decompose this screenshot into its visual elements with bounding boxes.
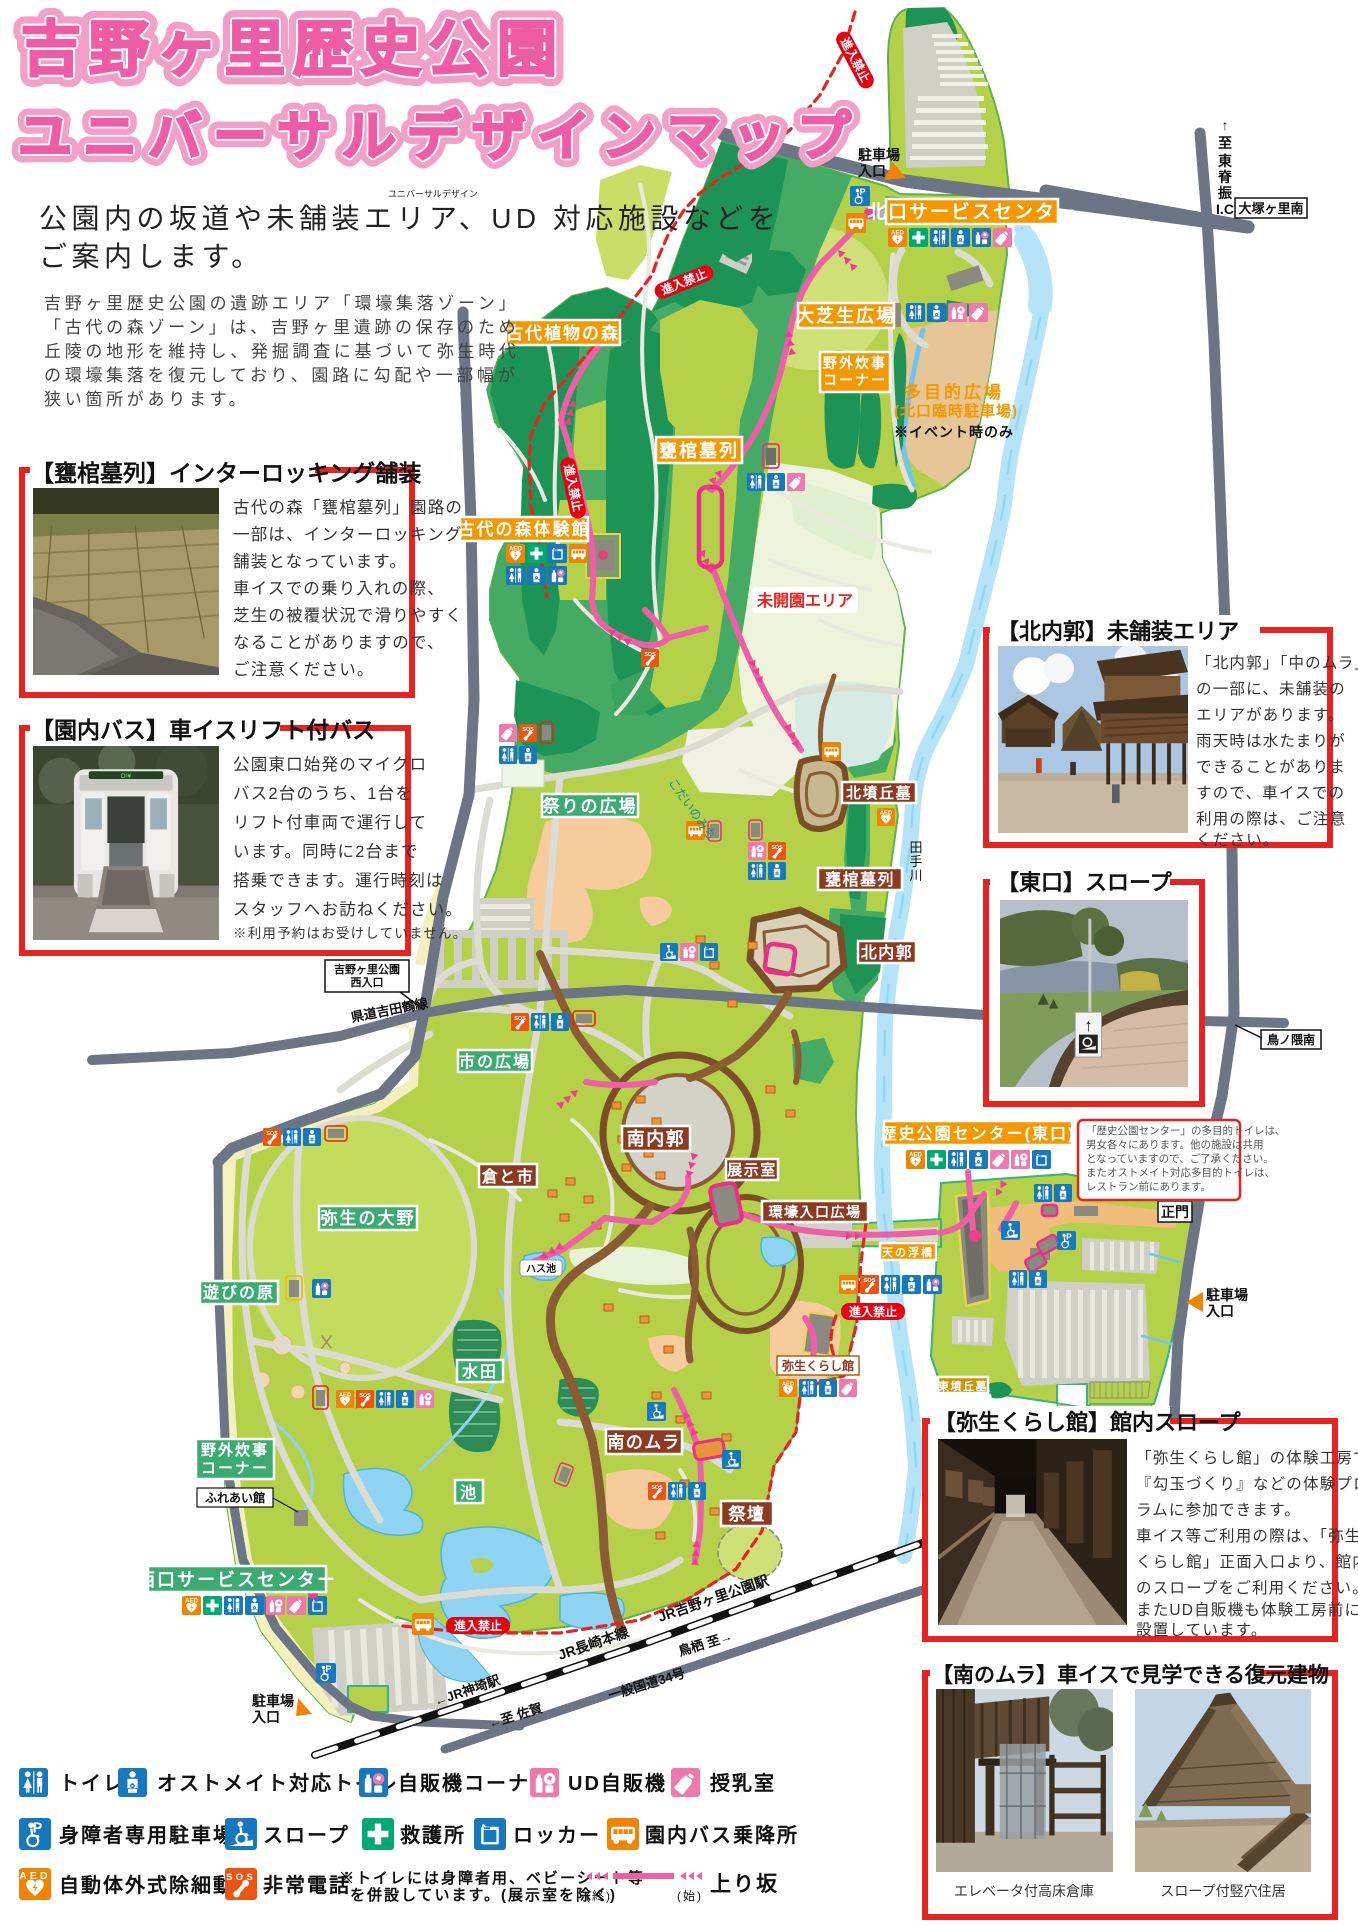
svg-text:遊びの原: 遊びの原 bbox=[203, 1283, 275, 1302]
svg-text:天の浮橋: 天の浮橋 bbox=[882, 1245, 934, 1259]
svg-text:弥生の大野: 弥生の大野 bbox=[321, 1208, 416, 1228]
svg-text:ください。: ください。 bbox=[1196, 831, 1280, 849]
svg-text:公園東口始発のマイクロ: 公園東口始発のマイクロ bbox=[233, 755, 427, 774]
svg-text:芝生の被覆状況で滑りやすく: 芝生の被覆状況で滑りやすく bbox=[233, 606, 463, 625]
svg-text:環壕入口広場: 環壕入口広場 bbox=[769, 1204, 862, 1220]
svg-text:【南のムラ】車イスで見学できる復元建物: 【南のムラ】車イスで見学できる復元建物 bbox=[932, 1663, 1329, 1687]
svg-text:展示室: 展示室 bbox=[727, 1161, 777, 1179]
svg-text:の一部に、未舗装の: の一部に、未舗装の bbox=[1196, 680, 1346, 698]
svg-text:トイレ: トイレ bbox=[59, 1773, 125, 1795]
svg-text:(終): (終) bbox=[586, 1888, 612, 1903]
svg-text:を併設しています。(展示室を除く): を併設しています。(展示室を除く) bbox=[350, 1886, 617, 1904]
svg-text:一部は、インターロッキング: 一部は、インターロッキング bbox=[233, 525, 463, 544]
svg-text:ラムに参加できます。: ラムに参加できます。 bbox=[1136, 1501, 1301, 1519]
svg-text:至: 至 bbox=[1218, 135, 1232, 151]
svg-text:男女各々にあります。他の施設は共用: 男女各々にあります。他の施設は共用 bbox=[1086, 1138, 1263, 1151]
svg-text:川: 川 bbox=[909, 868, 922, 883]
svg-text:甕棺墓列: 甕棺墓列 bbox=[659, 440, 739, 461]
svg-text:車イスでの乗り入れの際、: 車イスでの乗り入れの際、 bbox=[233, 579, 445, 598]
svg-text:授乳室: 授乳室 bbox=[710, 1771, 776, 1795]
svg-text:弥生くらし館: 弥生くらし館 bbox=[782, 1358, 854, 1373]
svg-text:入口: 入口 bbox=[1205, 1303, 1234, 1319]
svg-text:上り坂: 上り坂 bbox=[710, 1873, 779, 1896]
svg-text:吉野ヶ里歴史公園: 吉野ヶ里歴史公園 bbox=[21, 16, 565, 83]
svg-text:の環壕集落を復元しており、園路に勾配や一部幅が: の環壕集落を復元しており、園路に勾配や一部幅が bbox=[44, 366, 518, 385]
svg-text:スロープ付竪穴住居: スロープ付竪穴住居 bbox=[1160, 1883, 1285, 1899]
svg-text:非常電話: 非常電話 bbox=[263, 1874, 351, 1897]
svg-text:ご注意ください。: ご注意ください。 bbox=[233, 660, 375, 679]
svg-text:ふれあい館: ふれあい館 bbox=[205, 1490, 265, 1505]
svg-text:レストラン前にあります。: レストラン前にあります。 bbox=[1086, 1180, 1211, 1193]
svg-text:振: 振 bbox=[1218, 185, 1233, 201]
svg-text:西口サービスセンター: 西口サービスセンター bbox=[137, 1570, 337, 1590]
svg-text:進入禁止: 進入禁止 bbox=[454, 1618, 502, 1633]
svg-text:のスロープをご利用ください。: のスロープをご利用ください。 bbox=[1136, 1579, 1358, 1597]
svg-text:狭い箇所があります。: 狭い箇所があります。 bbox=[44, 390, 249, 409]
svg-text:大塚ヶ里南: 大塚ヶ里南 bbox=[1238, 201, 1303, 216]
svg-text:祭りの広場: 祭りの広場 bbox=[542, 796, 638, 816]
svg-text:搭乗できます。運行時刻は: 搭乗できます。運行時刻は bbox=[233, 871, 444, 890]
svg-text:正門: 正門 bbox=[1161, 1204, 1189, 1220]
svg-text:祭壇: 祭壇 bbox=[728, 1504, 766, 1524]
svg-text:「北内郭」「中のムラ」: 「北内郭」「中のムラ」 bbox=[1196, 654, 1358, 672]
svg-text:脊: 脊 bbox=[1217, 169, 1233, 185]
svg-text:田: 田 bbox=[909, 840, 922, 855]
svg-text:↑: ↑ bbox=[1222, 117, 1229, 133]
svg-text:未開園エリア: 未開園エリア bbox=[756, 591, 853, 610]
svg-text:多目的広場: 多目的広場 bbox=[904, 382, 1004, 402]
svg-text:UD自販機: UD自販機 bbox=[568, 1771, 667, 1795]
svg-text:となっていますので、ご了承ください。: となっていますので、ご了承ください。 bbox=[1086, 1152, 1274, 1165]
svg-text:市の広場: 市の広場 bbox=[459, 1052, 531, 1071]
svg-text:エレベータ付高床倉庫: エレベータ付高床倉庫 bbox=[954, 1883, 1094, 1899]
svg-text:水田: 水田 bbox=[461, 1362, 498, 1381]
svg-text:できることがありま: できることがありま bbox=[1196, 758, 1346, 776]
svg-text:【弥生くらし館】館内スロープ: 【弥生くらし館】館内スロープ bbox=[934, 1410, 1242, 1435]
svg-text:駐車場: 駐車場 bbox=[251, 1693, 294, 1709]
svg-text:西入口: 西入口 bbox=[351, 976, 384, 989]
svg-text:東: 東 bbox=[1218, 153, 1232, 169]
svg-text:(始): (始) bbox=[677, 1889, 703, 1903]
svg-text:バス2台のうち、1台を: バス2台のうち、1台を bbox=[233, 784, 413, 803]
svg-text:スロープ: スロープ bbox=[263, 1824, 350, 1847]
svg-text:甕棺墓列: 甕棺墓列 bbox=[825, 870, 895, 889]
svg-text:ユニバーサルデザイン: ユニバーサルデザイン bbox=[388, 188, 478, 199]
svg-text:駐車場: 駐車場 bbox=[857, 147, 900, 163]
svg-text:東墳丘墓: 東墳丘墓 bbox=[938, 1379, 988, 1393]
svg-text:野外炊事: 野外炊事 bbox=[201, 1441, 269, 1459]
svg-text:南のムラ: 南のムラ bbox=[607, 1432, 680, 1452]
svg-text:またUD自販機も体験工房前に: またUD自販機も体験工房前に bbox=[1136, 1601, 1358, 1619]
svg-text:います。同時に2台まで: います。同時に2台まで bbox=[233, 842, 419, 861]
svg-text:すので、車イスでの: すので、車イスでの bbox=[1196, 784, 1345, 802]
svg-text:※利用予約はお受けしていません。: ※利用予約はお受けしていません。 bbox=[233, 926, 467, 941]
svg-text:ご案内します。: ご案内します。 bbox=[39, 241, 264, 272]
svg-text:古代の森「甕棺墓列」園路の: 古代の森「甕棺墓列」園路の bbox=[233, 498, 463, 517]
svg-text:舗装となっています。: 舗装となっています。 bbox=[233, 552, 407, 571]
svg-text:歴史公園センター(東口): 歴史公園センター(東口) bbox=[881, 1124, 1076, 1143]
svg-text:※イベント時のみ: ※イベント時のみ bbox=[894, 424, 1014, 440]
svg-text:ロッカー: ロッカー bbox=[513, 1825, 601, 1847]
svg-text:「古代の森ゾーン」は、吉野ヶ里遺跡の保存のため: 「古代の森ゾーン」は、吉野ヶ里遺跡の保存のため bbox=[44, 318, 519, 337]
svg-text:I.C: I.C bbox=[1216, 201, 1234, 217]
svg-text:【北内郭】未舗装エリア: 【北内郭】未舗装エリア bbox=[997, 619, 1239, 644]
svg-text:手: 手 bbox=[909, 854, 922, 869]
svg-text:(北口臨時駐車場): (北口臨時駐車場) bbox=[894, 402, 1018, 420]
svg-text:「弥生くらし館」の体験工房では: 「弥生くらし館」の体験工房では bbox=[1136, 1449, 1358, 1467]
svg-text:古代植物の森: 古代植物の森 bbox=[506, 323, 620, 343]
svg-text:ハス池: ハス池 bbox=[526, 1262, 556, 1275]
svg-text:吉野ヶ里歴史公園の遺跡エリア「環壕集落ゾーン」: 吉野ヶ里歴史公園の遺跡エリア「環壕集落ゾーン」 bbox=[44, 294, 519, 313]
svg-text:エリアがあります。: エリアがあります。 bbox=[1196, 706, 1345, 724]
svg-text:北墳丘墓: 北墳丘墓 bbox=[846, 784, 912, 802]
svg-text:D!¥: D!¥ bbox=[121, 773, 131, 780]
svg-text:『勾玉づくり』などの体験プログ: 『勾玉づくり』などの体験プログ bbox=[1136, 1475, 1358, 1493]
svg-text:コーナー: コーナー bbox=[201, 1460, 269, 1477]
svg-text:倉と市: 倉と市 bbox=[482, 1167, 535, 1186]
svg-text:自販機コーナー: 自販機コーナー bbox=[398, 1771, 552, 1795]
svg-text:スタッフへお訪ねください。: スタッフへお訪ねください。 bbox=[233, 900, 463, 919]
svg-text:「歴史公園センター」の多目的トイレは、: 「歴史公園センター」の多目的トイレは、 bbox=[1086, 1124, 1286, 1137]
svg-text:古代の森体験館: 古代の森体験館 bbox=[458, 519, 591, 539]
svg-text:南内郭: 南内郭 bbox=[627, 1128, 686, 1149]
svg-text:リフト付車両で運行して: リフト付車両で運行して bbox=[233, 813, 427, 832]
svg-text:救護所: 救護所 bbox=[400, 1823, 466, 1847]
svg-text:コーナー: コーナー bbox=[823, 372, 887, 388]
svg-text:【園内バス】車イスリフト付バス: 【園内バス】車イスリフト付バス bbox=[31, 717, 375, 743]
svg-text:↑: ↑ bbox=[1084, 1016, 1092, 1035]
svg-text:車イス等ご利用の際は、「弥生: 車イス等ご利用の際は、「弥生 bbox=[1136, 1527, 1358, 1545]
svg-text:吉野ヶ里公園: 吉野ヶ里公園 bbox=[334, 962, 400, 976]
svg-text:丘陵の地形を維持し、発掘調査に基づいて弥生時代: 丘陵の地形を維持し、発掘調査に基づいて弥生時代 bbox=[44, 342, 520, 361]
svg-text:設置しています。: 設置しています。 bbox=[1136, 1621, 1268, 1639]
svg-text:公園内の坂道や未舗装エリア、UD 対応施設などを: 公園内の坂道や未舗装エリア、UD 対応施設などを bbox=[39, 203, 780, 234]
svg-text:入口: 入口 bbox=[251, 1709, 280, 1725]
svg-text:またオストメイト対応多目的トイレは、: またオストメイト対応多目的トイレは、 bbox=[1086, 1166, 1275, 1179]
svg-text:北口サービスセンター: 北口サービスセンター bbox=[867, 201, 1077, 223]
svg-text:大芝生広場: 大芝生広場 bbox=[796, 305, 896, 326]
svg-text:園内バス乗降所: 園内バス乗降所 bbox=[645, 1823, 799, 1847]
svg-text:身障者専用駐車場: 身障者専用駐車場 bbox=[59, 1823, 235, 1847]
svg-text:野外炊事: 野外炊事 bbox=[823, 355, 887, 371]
svg-text:雨天時は水たまりが: 雨天時は水たまりが bbox=[1196, 732, 1346, 750]
svg-text:なることがありますので、: なることがありますので、 bbox=[233, 633, 445, 652]
svg-text:利用の際は、ご注意: 利用の際は、ご注意 bbox=[1196, 810, 1346, 828]
svg-text:池: 池 bbox=[460, 1483, 478, 1502]
svg-text:【甕棺墓列】インターロッキング舗装: 【甕棺墓列】インターロッキング舗装 bbox=[31, 460, 422, 486]
svg-text:くらし館」正面入口より、館内: くらし館」正面入口より、館内 bbox=[1136, 1553, 1358, 1571]
svg-text:【東口】スロープ: 【東口】スロープ bbox=[997, 870, 1173, 895]
svg-text:進入禁止: 進入禁止 bbox=[849, 1304, 897, 1319]
svg-text:ユニバーサルデザインマップ: ユニバーサルデザインマップ bbox=[18, 107, 862, 167]
svg-text:駐車場: 駐車場 bbox=[1205, 1287, 1248, 1303]
svg-text:一般国道34号: 一般国道34号 bbox=[606, 1665, 686, 1703]
svg-text:鳥ノ隈南: 鳥ノ隈南 bbox=[1267, 1032, 1315, 1047]
svg-text:北内郭: 北内郭 bbox=[861, 943, 914, 962]
